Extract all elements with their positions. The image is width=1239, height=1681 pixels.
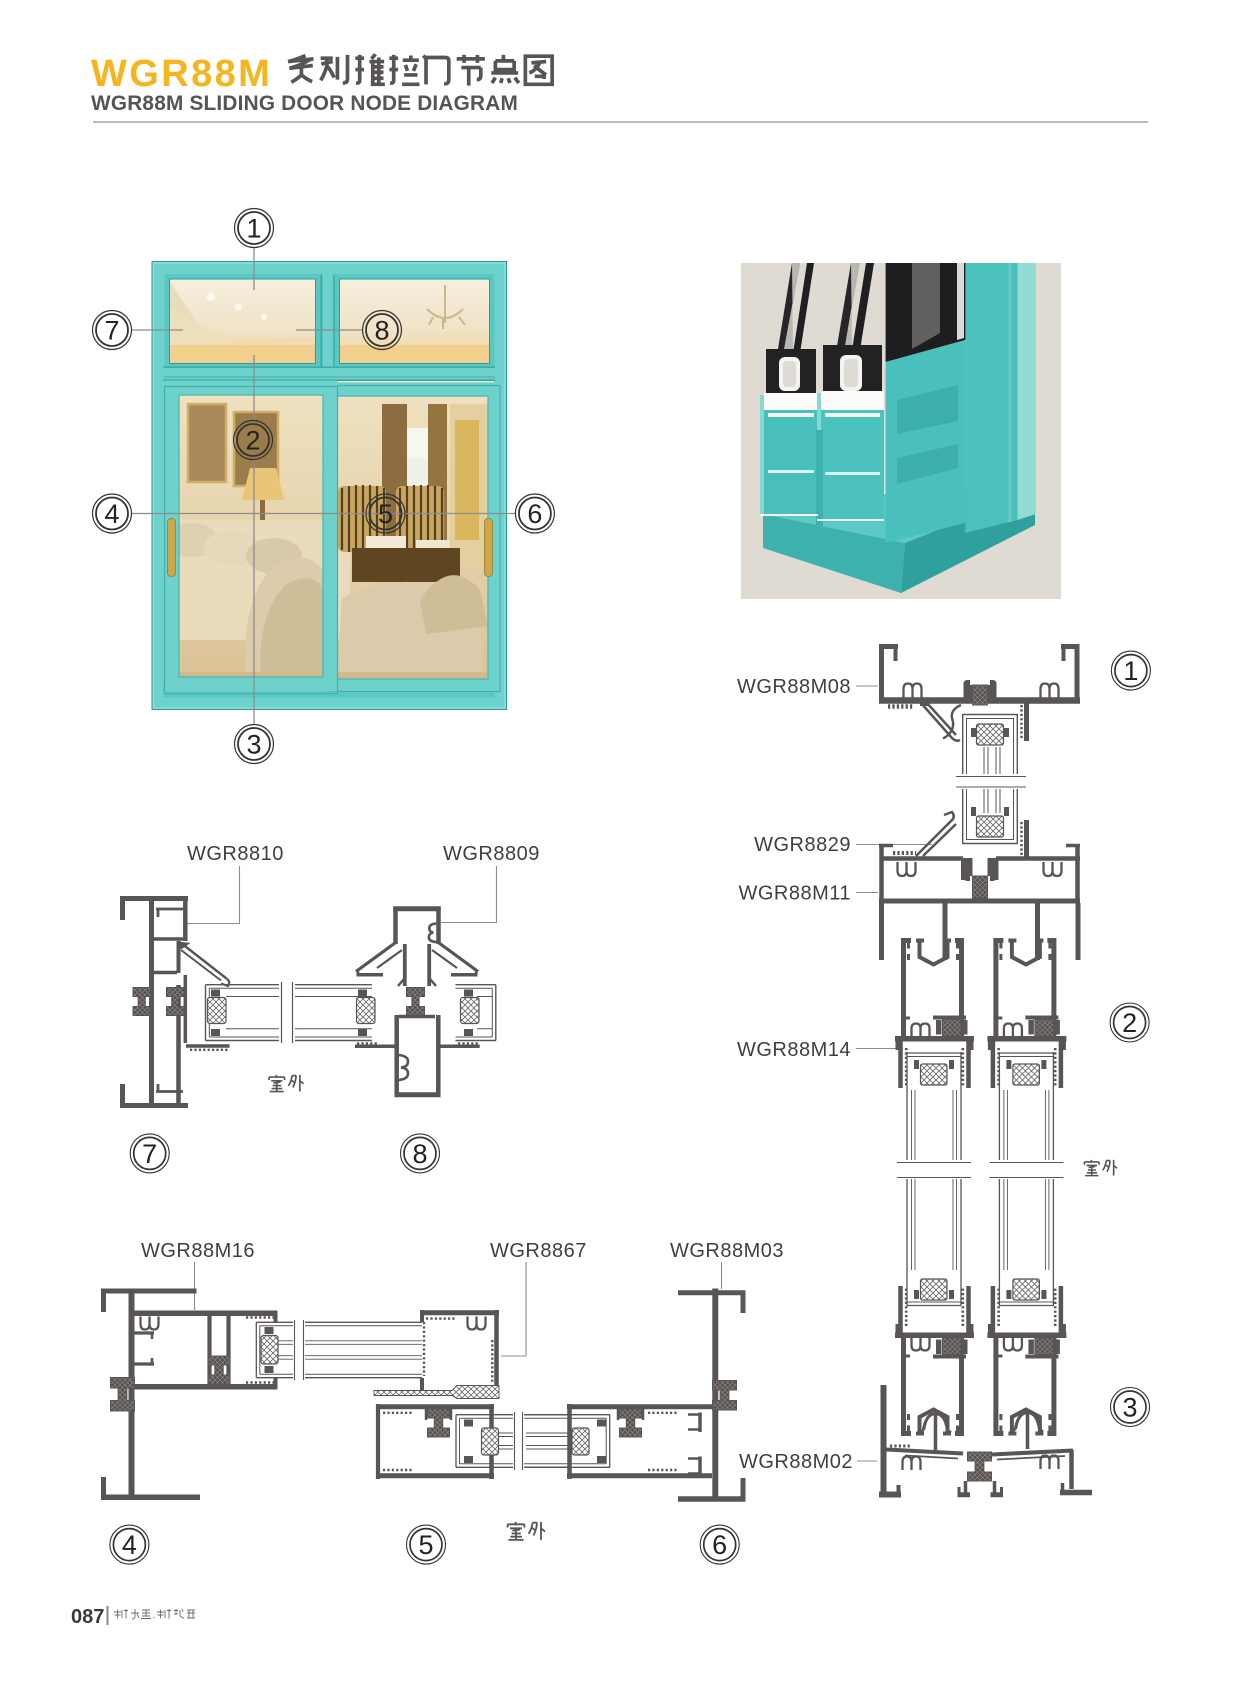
svg-text:6: 6 <box>712 1530 727 1560</box>
svg-text:WGR88M08: WGR88M08 <box>737 676 851 698</box>
svg-text:7: 7 <box>104 316 119 346</box>
svg-text:6: 6 <box>527 499 542 529</box>
svg-text:3: 3 <box>246 730 261 760</box>
svg-text:2: 2 <box>1122 1008 1137 1038</box>
svg-text:7: 7 <box>142 1139 157 1169</box>
svg-text:087: 087 <box>71 1606 104 1628</box>
svg-text:WGR88M11: WGR88M11 <box>738 883 851 905</box>
svg-text:WGR8829: WGR8829 <box>754 834 851 856</box>
svg-text:WGR88M02: WGR88M02 <box>739 1451 853 1473</box>
svg-text:WGR88M14: WGR88M14 <box>737 1039 851 1061</box>
svg-text:WGR88M SLIDING DOOR NODE DIAGR: WGR88M SLIDING DOOR NODE DIAGRAM <box>91 92 518 115</box>
svg-text:5: 5 <box>418 1530 433 1560</box>
svg-text:WGR88M03: WGR88M03 <box>670 1240 784 1262</box>
svg-text:2: 2 <box>245 426 260 456</box>
svg-text:WGR8809: WGR8809 <box>443 843 540 865</box>
svg-text:WGR88M: WGR88M <box>91 53 272 95</box>
svg-text:4: 4 <box>104 499 119 529</box>
svg-text:WGR8867: WGR8867 <box>490 1240 587 1262</box>
svg-text:5: 5 <box>378 499 393 529</box>
svg-text:1: 1 <box>246 214 261 244</box>
svg-text:3: 3 <box>1122 1393 1137 1423</box>
svg-text:4: 4 <box>122 1530 137 1560</box>
svg-text:8: 8 <box>412 1139 427 1169</box>
svg-text:WGR8810: WGR8810 <box>187 843 284 865</box>
svg-text:WGR88M16: WGR88M16 <box>141 1240 255 1262</box>
svg-text:8: 8 <box>374 316 389 346</box>
svg-text:1: 1 <box>1123 656 1138 686</box>
